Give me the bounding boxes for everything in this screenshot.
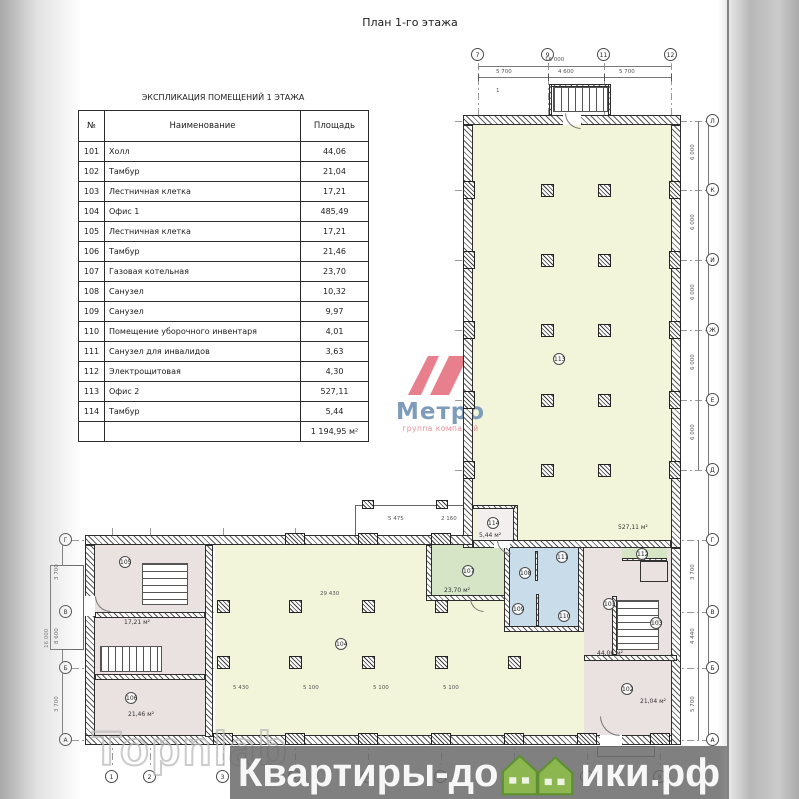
dimension-label: 6 000 [690,144,696,160]
page-title: План 1-го этажа [260,16,560,29]
grid-bubble: В [706,605,719,618]
grid-bubble: А [59,733,72,746]
room-number-bubble: 102 [621,683,633,695]
structural-column [598,184,611,197]
room-number-bubble: 110 [558,610,570,622]
dimension-line [478,77,671,78]
banner-text-right: ики.рф [580,753,720,793]
sheet-edge-line [727,0,729,799]
screenshot-root: План 1-го этажа ЭКСПЛИКАЦИЯ ПОМЕЩЕНИЙ 1 … [0,0,799,799]
wall-pilaster [358,733,378,745]
room-number-bubble: 113 [553,353,565,365]
dimension-tick [671,74,672,81]
room-number-bubble: 108 [519,567,531,579]
room-name: Санузел [105,302,301,322]
dimension-label: 3 700 [690,564,696,580]
structural-column [289,600,302,613]
room-number: 104 [79,202,105,222]
table-total-row: 1 194,95 м² [79,422,369,442]
site-watermark-banner: Квартиры-до ики.рф [230,746,728,799]
room-name: Помещение уборочного инвентаря [105,322,301,342]
wall-pilaster [463,461,475,479]
grid-bubble: Г [706,533,719,546]
dimension-tick [604,74,605,81]
room-number: 109 [79,302,105,322]
structural-column [598,464,611,477]
dimension-line [698,540,699,740]
table-row: 112Электрощитовая4,30 [79,362,369,382]
wall-pilaster [431,533,451,545]
room-number-bubble: 112 [636,548,648,560]
structural-column [598,254,611,267]
room-number: 111 [79,342,105,362]
structural-column [541,394,554,407]
wall-segment [95,612,205,618]
wall-segment [578,545,584,632]
dimension-line [478,66,671,67]
room-number-bubble: 107 [462,565,474,577]
wall-segment [473,505,515,509]
room-number-bubble: 105 [119,556,131,568]
room-number: 112 [79,362,105,382]
room-area-label: 17,21 м² [124,619,150,626]
room-area-label: 44,06 м² [597,650,623,657]
dimension-label: 6 000 [690,424,696,440]
structural-column [435,656,448,669]
room-area: 527,11 [301,382,369,402]
wall-segment [426,545,432,601]
grid-bubble: К [706,183,719,196]
grid-bubble: Д [706,463,719,476]
dimension-label: 5 700 [496,69,512,75]
dimension-label: 6 000 [690,214,696,230]
table-row: 107Газовая котельная23,70 [79,262,369,282]
wall-segment [95,674,205,680]
room-area: 4,01 [301,322,369,342]
wall-segment [608,84,611,115]
door-opening [600,735,622,745]
dimension-tick [548,74,549,81]
room-explication-table: № Наименование Площадь 101Холл44,06102Та… [78,110,369,442]
wall-segment [513,505,518,545]
room-number-bubble: 111 [556,551,568,563]
stair-flight [100,646,162,672]
stair-flight [553,87,608,112]
structural-column [289,656,302,669]
wall-pilaster [650,733,670,745]
room-name: Тамбур [105,402,301,422]
metro-logo: Метро группа компаний [383,353,498,448]
room-area: 485,49 [301,202,369,222]
houses-icon [500,750,578,796]
grid-bubble: В [59,605,72,618]
table-row: 113Офис 2527,11 [79,382,369,402]
room-number-bubble: 104 [335,638,347,650]
room-area: 9,97 [301,302,369,322]
room-name: Газовая котельная [105,262,301,282]
room-area [473,125,671,542]
room-number: 107 [79,262,105,282]
room-number: 105 [79,222,105,242]
dimension-label: 6 000 [690,284,696,300]
room-area-label: 5,44 м² [479,532,501,539]
wall-segment [671,548,681,745]
wall-pilaster [577,733,597,745]
dimension-label: 4 600 [558,69,574,75]
structural-column [541,324,554,337]
room-number: 106 [79,242,105,262]
door-opening [85,596,95,616]
wall-pilaster [669,461,681,479]
dimension-label: 5 100 [443,685,459,691]
dimension-label: 5 430 [233,685,249,691]
structural-column [217,656,230,669]
wall-pilaster [431,733,451,745]
grid-bubble: 11 [597,48,610,61]
wall-segment [504,626,584,632]
explication-title: ЭКСПЛИКАЦИЯ ПОМЕЩЕНИЙ 1 ЭТАЖА [78,93,368,102]
grid-bubble: 12 [664,48,677,61]
wall-pilaster [463,321,475,339]
stair-flight [142,563,188,605]
table-row: 101Холл44,06 [79,142,369,162]
structural-column [541,464,554,477]
room-number: 108 [79,282,105,302]
wall-segment [549,84,552,115]
grid-bubble: Г [59,533,72,546]
total-area: 1 194,95 м² [301,422,369,442]
dimension-label: 4 440 [690,628,696,644]
wall-pilaster [463,251,475,269]
room-area: 23,70 [301,262,369,282]
room-name: Тамбур [105,242,301,262]
dimension-label: 16 000 [44,629,50,648]
room-number-bubble: 106 [125,692,137,704]
wall-pilaster [669,321,681,339]
wall-pilaster [669,181,681,199]
metro-logo-subtitle: группа компаний [383,424,498,433]
room-name: Санузел [105,282,301,302]
grid-bubble: И [706,253,719,266]
room-area: 44,06 [301,142,369,162]
dimension-label: 6 000 [690,354,696,370]
dimension-line [708,121,709,740]
table-row: 103Лестничная клетка17,21 [79,182,369,202]
structural-column [362,500,374,509]
wall-segment [504,545,510,632]
room-area-label: 21,46 м² [128,711,154,718]
table-row: 108Санузел10,32 [79,282,369,302]
wall-pilaster [669,391,681,409]
room-area: 4,30 [301,362,369,382]
col-header-number: № [79,111,105,142]
table-row: 110Помещение уборочного инвентаря4,01 [79,322,369,342]
grid-bubble: А [706,733,719,746]
room-area: 17,21 [301,182,369,202]
dimension-label: 5 100 [373,685,389,691]
table-row: 102Тамбур21,04 [79,162,369,182]
table-row: 106Тамбур21,46 [79,242,369,262]
table-row: 104Офис 1485,49 [79,202,369,222]
room-area-label: 23,70 м² [444,587,470,594]
wall-segment [85,545,95,745]
wall-segment [536,594,539,626]
dimension-label: 2 160 [441,516,457,522]
room-name: Электрощитовая [105,362,301,382]
room-number-bubble: 114 [487,517,499,529]
room-number: 103 [79,182,105,202]
col-header-name: Наименование [105,111,301,142]
table-row: 111Санузел для инвалидов3,63 [79,342,369,362]
room-number: 113 [79,382,105,402]
wall-segment [549,84,611,87]
dimension-tick [478,74,479,81]
table-row: 114Тамбур5,44 [79,402,369,422]
dimension-label: 3 700 [54,696,60,712]
room-number: 102 [79,162,105,182]
room-area: 17,21 [301,222,369,242]
structural-column [217,600,230,613]
wall-pilaster [285,533,305,545]
dimension-line [698,121,699,470]
grid-bubble: Л [706,114,719,127]
structural-column [362,600,375,613]
dimension-label: 8 600 [54,628,60,644]
wall-segment [205,545,213,737]
room-number-bubble: 109 [512,603,524,615]
wall-pilaster [358,533,378,545]
room-name: Санузел для инвалидов [105,342,301,362]
room-area-label: 527,11 м² [618,524,648,531]
room-area: 10,32 [301,282,369,302]
room-area: 21,04 [301,162,369,182]
table-row: 109Санузел9,97 [79,302,369,322]
room-name: Офис 2 [105,382,301,402]
room-area: 5,44 [301,402,369,422]
banner-text-left: Квартиры-до [238,753,499,793]
structural-column [435,600,448,613]
wall-pilaster [463,181,475,199]
structural-column [541,184,554,197]
room-number: 110 [79,322,105,342]
grid-bubble: Ж [706,323,719,336]
structural-column [541,254,554,267]
room-name: Холл [105,142,301,162]
room-name: Лестничная клетка [105,222,301,242]
grid-bubble: 7 [471,48,484,61]
dimension-label: 16 000 [545,57,564,63]
structural-column [362,656,375,669]
dimension-label: 5 100 [303,685,319,691]
room-area: 3,63 [301,342,369,362]
structural-column [508,656,521,669]
col-header-area: Площадь [301,111,369,142]
left-edge-vignette [0,0,82,799]
room-name: Лестничная клетка [105,182,301,202]
wall-pilaster [504,733,524,745]
dimension-label: 29 430 [320,591,339,597]
structural-column [436,500,448,509]
wall-pilaster [463,391,475,409]
room-name: Офис 1 [105,202,301,222]
metro-logo-name: Метро [383,401,498,424]
right-edge-vignette [718,0,799,799]
dimension-label: 5 475 [388,516,404,522]
structural-column [598,394,611,407]
dimension-label: 1 [496,88,500,94]
structural-column [598,324,611,337]
room-number: 101 [79,142,105,162]
dimension-label: 5 700 [690,696,696,712]
grid-bubble: Б [706,661,719,674]
dimension-label: 3 700 [54,564,60,580]
wall-segment [535,551,538,581]
wall-segment [85,535,473,545]
grid-bubble: Е [706,393,719,406]
room-area: 21,46 [301,242,369,262]
wall-pilaster [669,251,681,269]
dimension-label: 5 700 [619,69,635,75]
room-number: 114 [79,402,105,422]
grid-bubble: Б [59,661,72,674]
room-area-label: 21,04 м² [640,698,666,705]
room-number-bubble: 103 [650,617,662,629]
elevator-shaft [640,561,668,582]
room-number-bubble: 101 [603,598,615,610]
room-name: Тамбур [105,162,301,182]
table-row: 105Лестничная клетка17,21 [79,222,369,242]
